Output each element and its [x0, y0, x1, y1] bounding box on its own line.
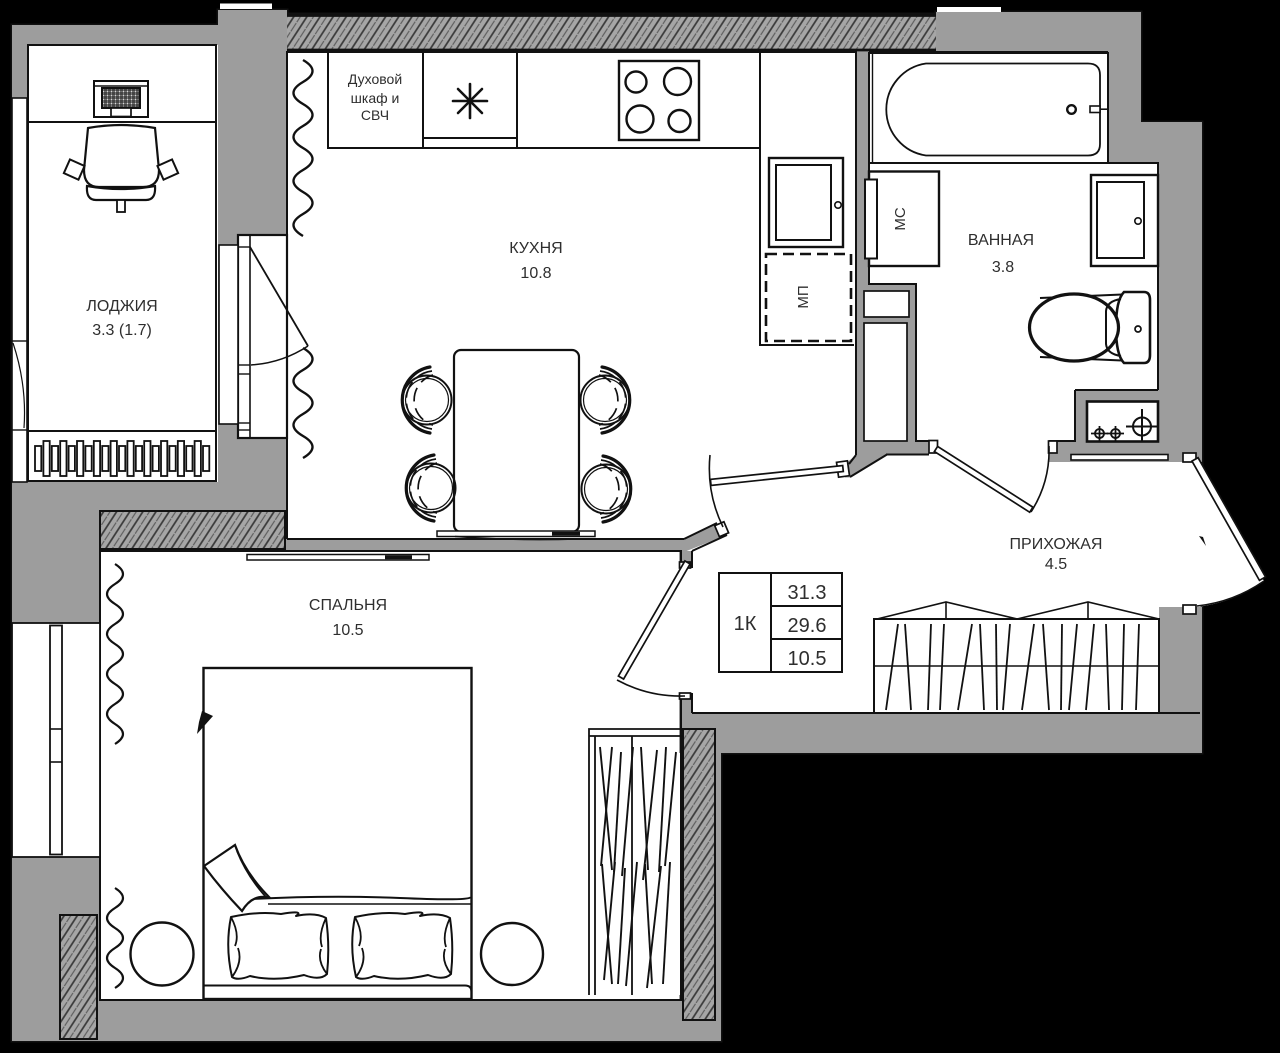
- svg-text:КУХНЯ: КУХНЯ: [509, 240, 562, 257]
- svg-text:шкаф и: шкаф и: [351, 90, 400, 106]
- svg-text:10.5: 10.5: [788, 648, 827, 670]
- svg-text:10.5: 10.5: [332, 622, 363, 639]
- svg-text:ЛОДЖИЯ: ЛОДЖИЯ: [86, 298, 157, 315]
- svg-text:Духовой: Духовой: [348, 71, 402, 87]
- svg-text:ВАННАЯ: ВАННАЯ: [968, 232, 1034, 249]
- svg-text:СПАЛЬНЯ: СПАЛЬНЯ: [309, 597, 387, 614]
- svg-text:1К: 1К: [734, 613, 757, 635]
- svg-text:3.3 (1.7): 3.3 (1.7): [92, 322, 152, 339]
- svg-text:МП: МП: [795, 285, 812, 308]
- svg-text:31.3: 31.3: [788, 582, 827, 604]
- svg-text:29.6: 29.6: [788, 615, 827, 637]
- svg-text:ПРИХОЖАЯ: ПРИХОЖАЯ: [1010, 536, 1103, 553]
- svg-text:4.5: 4.5: [1045, 556, 1067, 573]
- svg-text:3.8: 3.8: [992, 259, 1014, 276]
- svg-text:МС: МС: [892, 207, 909, 230]
- svg-text:СВЧ: СВЧ: [361, 107, 389, 123]
- svg-text:10.8: 10.8: [520, 265, 551, 282]
